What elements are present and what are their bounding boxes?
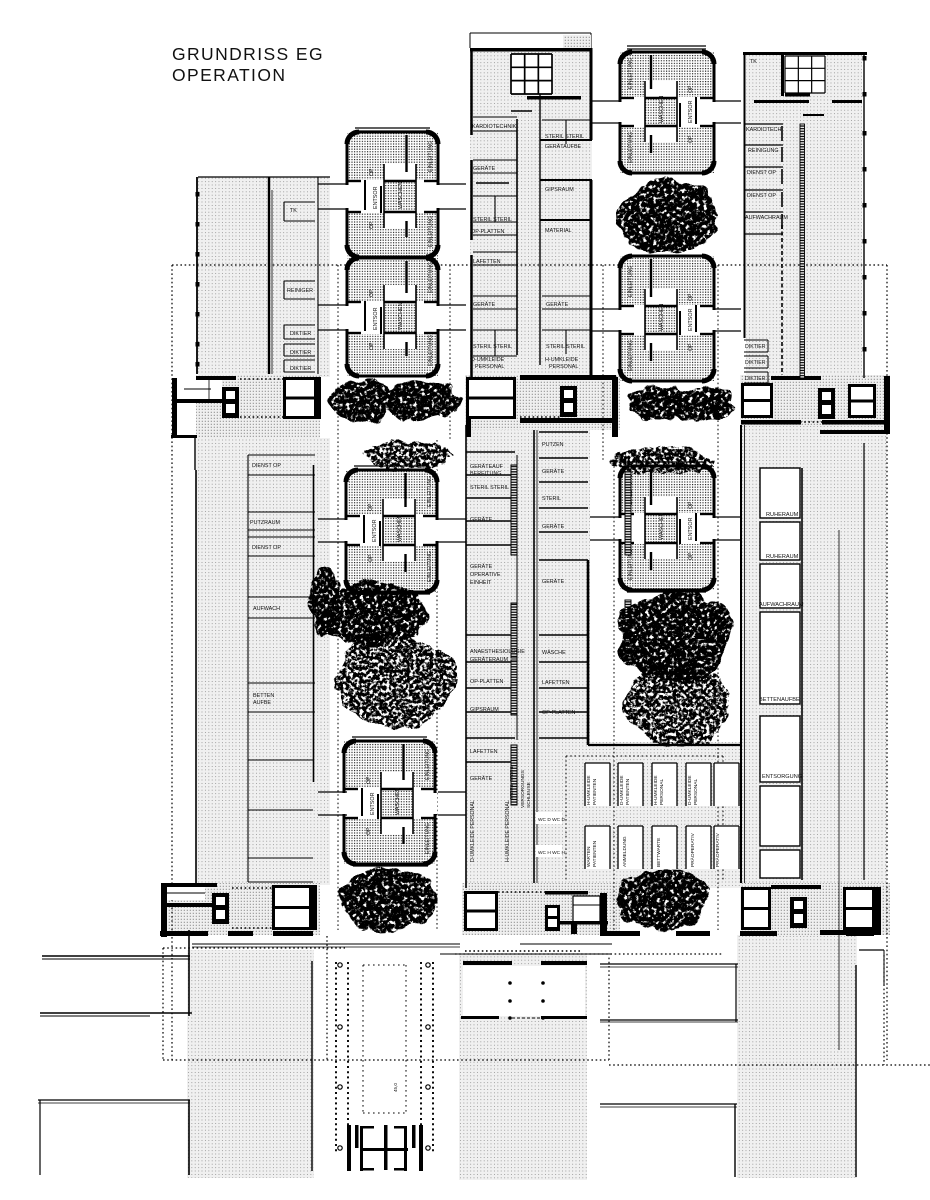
svg-text:STERIL STERIL: STERIL STERIL bbox=[545, 134, 584, 140]
svg-text:EINLEITUNG: EINLEITUNG bbox=[628, 340, 634, 371]
svg-text:PERSONAL: PERSONAL bbox=[549, 364, 578, 370]
svg-text:STERIL STERIL: STERIL STERIL bbox=[473, 344, 512, 350]
svg-text:OP: OP bbox=[688, 135, 694, 143]
svg-text:EINLEITUNG: EINLEITUNG bbox=[425, 749, 431, 780]
svg-text:EINLEITUNG: EINLEITUNG bbox=[628, 266, 634, 297]
svg-text:D-UMKLEIDE: D-UMKLEIDE bbox=[619, 775, 625, 805]
svg-text:H-UMKLEIDE: H-UMKLEIDE bbox=[653, 775, 659, 805]
svg-text:EINLEITUNG: EINLEITUNG bbox=[427, 476, 433, 507]
svg-text:EINLEITUNG: EINLEITUNG bbox=[428, 262, 434, 293]
svg-text:WARTEN: WARTEN bbox=[586, 846, 592, 867]
svg-text:OP: OP bbox=[369, 342, 375, 350]
svg-text:DIKTIER: DIKTIER bbox=[745, 344, 766, 350]
svg-text:OP: OP bbox=[688, 343, 694, 351]
svg-text:LAFETTEN: LAFETTEN bbox=[470, 749, 498, 755]
svg-text:ENTSOR: ENTSOR bbox=[373, 186, 379, 209]
svg-text:D-UMKLEIDE: D-UMKLEIDE bbox=[471, 357, 505, 363]
svg-text:OP: OP bbox=[688, 501, 694, 509]
svg-text:PRÄOPERATIV: PRÄOPERATIV bbox=[714, 832, 721, 867]
svg-text:AUFWACHRAUM: AUFWACHRAUM bbox=[745, 215, 788, 221]
svg-text:EINLEITUNG: EINLEITUNG bbox=[628, 58, 634, 89]
svg-text:VERSORGUNGS: VERSORGUNGS bbox=[520, 770, 526, 808]
svg-text:GERÄTE: GERÄTE bbox=[473, 301, 496, 308]
svg-text:D-UMKLEIDE: D-UMKLEIDE bbox=[687, 775, 693, 805]
svg-text:OP: OP bbox=[366, 827, 372, 835]
svg-text:GERÄTE: GERÄTE bbox=[542, 578, 565, 585]
svg-text:ENTSOR: ENTSOR bbox=[688, 517, 694, 540]
svg-text:GERÄTE: GERÄTE bbox=[546, 301, 569, 308]
svg-text:OP: OP bbox=[368, 503, 374, 511]
svg-text:EINLEITUNG: EINLEITUNG bbox=[425, 823, 431, 854]
svg-text:BETTENAUFBE: BETTENAUFBE bbox=[759, 697, 800, 703]
svg-text:45,0: 45,0 bbox=[393, 1083, 398, 1092]
svg-text:DIENST OP: DIENST OP bbox=[252, 545, 281, 551]
svg-text:BETTEN: BETTEN bbox=[253, 693, 274, 699]
svg-text:WASCHEN: WASCHEN bbox=[659, 304, 665, 331]
svg-text:PATIENTEN: PATIENTEN bbox=[592, 778, 598, 805]
svg-text:H-UMKLEIDE: H-UMKLEIDE bbox=[545, 357, 579, 363]
svg-text:OP: OP bbox=[369, 168, 375, 176]
svg-text:EINLEITUNG: EINLEITUNG bbox=[428, 141, 434, 172]
svg-text:PRÄOPERATIV: PRÄOPERATIV bbox=[689, 832, 696, 867]
svg-text:ENTSOR: ENTSOR bbox=[373, 307, 379, 330]
svg-text:OP: OP bbox=[369, 221, 375, 229]
svg-text:RUHERAUM: RUHERAUM bbox=[766, 512, 799, 518]
svg-text:WASCHEN: WASCHEN bbox=[397, 515, 403, 542]
svg-text:BEREITUNG: BEREITUNG bbox=[470, 471, 501, 477]
svg-text:ANAESTHESIOLOGIE: ANAESTHESIOLOGIE bbox=[470, 649, 525, 655]
svg-text:WASCHEN: WASCHEN bbox=[398, 303, 404, 330]
svg-text:OPERATIVE: OPERATIVE bbox=[470, 572, 501, 578]
svg-text:REINIGER: REINIGER bbox=[287, 288, 313, 294]
svg-text:LAFETTEN: LAFETTEN bbox=[542, 680, 570, 686]
svg-text:EINLEITUNG: EINLEITUNG bbox=[428, 335, 434, 366]
svg-text:STERIL STERIL: STERIL STERIL bbox=[509, 765, 515, 800]
svg-text:D-UMKLEIDE PERSONAL: D-UMKLEIDE PERSONAL bbox=[470, 800, 476, 862]
svg-text:PUTZRAUM: PUTZRAUM bbox=[250, 520, 280, 526]
svg-text:OP-PLATTEN: OP-PLATTEN bbox=[470, 679, 504, 685]
svg-text:DIKTIER: DIKTIER bbox=[745, 360, 766, 366]
svg-text:PATIENTEN: PATIENTEN bbox=[592, 840, 598, 867]
svg-text:DIKTIER: DIKTIER bbox=[290, 350, 311, 356]
svg-text:AUFWACH: AUFWACH bbox=[253, 606, 280, 612]
svg-text:GERÄTERAUM: GERÄTERAUM bbox=[470, 656, 509, 663]
svg-text:WC H WC H: WC H WC H bbox=[538, 850, 565, 856]
svg-text:PERSONAL: PERSONAL bbox=[693, 779, 699, 805]
svg-text:TK: TK bbox=[750, 59, 757, 65]
svg-text:TK: TK bbox=[290, 208, 297, 214]
svg-text:DIENST OP: DIENST OP bbox=[747, 193, 776, 199]
svg-text:STERIL STERIL: STERIL STERIL bbox=[546, 344, 585, 350]
svg-text:GERÄTE: GERÄTE bbox=[470, 563, 493, 570]
svg-text:DIENST OP: DIENST OP bbox=[252, 463, 281, 469]
svg-text:EINLEITUNG: EINLEITUNG bbox=[628, 132, 634, 163]
svg-text:AUFBE: AUFBE bbox=[253, 700, 271, 706]
svg-text:ENTSOR: ENTSOR bbox=[688, 100, 694, 123]
svg-text:OP: OP bbox=[366, 776, 372, 784]
svg-text:DIKTIER: DIKTIER bbox=[745, 376, 766, 382]
svg-text:WASCHEN: WASCHEN bbox=[659, 513, 665, 540]
svg-text:WASCHEN: WASCHEN bbox=[395, 788, 401, 815]
svg-text:GERÄTE: GERÄTE bbox=[470, 516, 493, 523]
svg-text:RUHERAUM: RUHERAUM bbox=[766, 554, 799, 560]
svg-text:GERÄTEAUF: GERÄTEAUF bbox=[470, 463, 504, 470]
svg-text:STERIL: STERIL bbox=[542, 496, 561, 502]
svg-text:KARDIOTECHNIK: KARDIOTECHNIK bbox=[472, 124, 517, 130]
svg-text:EINLEITUNG: EINLEITUNG bbox=[428, 216, 434, 247]
svg-text:GERÄTE: GERÄTE bbox=[542, 468, 565, 475]
svg-text:GRUNDRISS EG: GRUNDRISS EG bbox=[172, 44, 324, 64]
svg-text:WC D WC D: WC D WC D bbox=[538, 817, 565, 823]
svg-text:OP-PLATTEN: OP-PLATTEN bbox=[471, 229, 505, 235]
svg-text:OP-PLATTEN: OP-PLATTEN bbox=[542, 710, 576, 716]
svg-text:REINIGUNG: REINIGUNG bbox=[748, 148, 779, 154]
svg-text:EINLEITUNG: EINLEITUNG bbox=[427, 551, 433, 582]
svg-text:DIKTIER: DIKTIER bbox=[290, 366, 311, 372]
svg-text:H-UMKLEIDE: H-UMKLEIDE bbox=[586, 775, 592, 805]
svg-text:PERSONAL: PERSONAL bbox=[659, 779, 665, 805]
svg-text:STERIL STERIL: STERIL STERIL bbox=[470, 485, 509, 491]
svg-text:WÄSCHE: WÄSCHE bbox=[542, 649, 566, 656]
svg-text:KARDIOTECH.: KARDIOTECH. bbox=[746, 127, 783, 133]
svg-text:AUFWACHRAUM: AUFWACHRAUM bbox=[759, 602, 804, 608]
svg-text:EINHEIT: EINHEIT bbox=[470, 580, 492, 586]
svg-text:GERÄTE: GERÄTE bbox=[470, 775, 493, 782]
svg-text:GERÄTAUFBE: GERÄTAUFBE bbox=[545, 143, 582, 150]
svg-text:ENTSOR: ENTSOR bbox=[372, 519, 378, 542]
svg-text:ENTSORGUNG: ENTSORGUNG bbox=[762, 774, 802, 780]
svg-text:GIPSRAUM: GIPSRAUM bbox=[545, 187, 574, 193]
svg-text:DIENST OP: DIENST OP bbox=[747, 170, 776, 176]
svg-text:DIKTIER: DIKTIER bbox=[290, 331, 311, 337]
svg-text:OP: OP bbox=[688, 552, 694, 560]
svg-text:STERIL STERIL: STERIL STERIL bbox=[473, 217, 512, 223]
svg-text:ANMELDUNG: ANMELDUNG bbox=[622, 836, 628, 867]
svg-text:SCHLEUSE: SCHLEUSE bbox=[526, 782, 532, 808]
svg-text:H-UMKLEIDE PERSONAL: H-UMKLEIDE PERSONAL bbox=[505, 800, 511, 862]
svg-text:OPERATION: OPERATION bbox=[172, 65, 286, 85]
svg-text:OP: OP bbox=[688, 293, 694, 301]
svg-text:ENTSOR: ENTSOR bbox=[370, 792, 376, 815]
svg-text:PERSONAL: PERSONAL bbox=[475, 364, 504, 370]
svg-text:PUTZEN: PUTZEN bbox=[542, 442, 564, 448]
svg-text:WASCHEN: WASCHEN bbox=[659, 96, 665, 123]
svg-text:LAFETTEN: LAFETTEN bbox=[473, 259, 501, 265]
svg-text:OP: OP bbox=[688, 85, 694, 93]
svg-text:GIPSRAUM: GIPSRAUM bbox=[470, 707, 499, 713]
svg-text:MATERIAL: MATERIAL bbox=[545, 228, 572, 234]
svg-text:PATIENTEN: PATIENTEN bbox=[625, 778, 631, 805]
svg-text:GERÄTE: GERÄTE bbox=[473, 165, 496, 172]
svg-text:BETTWARTE: BETTWARTE bbox=[656, 838, 662, 867]
svg-text:OP: OP bbox=[369, 289, 375, 297]
svg-text:WASCHEN: WASCHEN bbox=[398, 182, 404, 209]
svg-text:ENTSOR: ENTSOR bbox=[688, 308, 694, 331]
svg-text:GERÄTE: GERÄTE bbox=[542, 523, 565, 530]
svg-text:OP: OP bbox=[368, 554, 374, 562]
